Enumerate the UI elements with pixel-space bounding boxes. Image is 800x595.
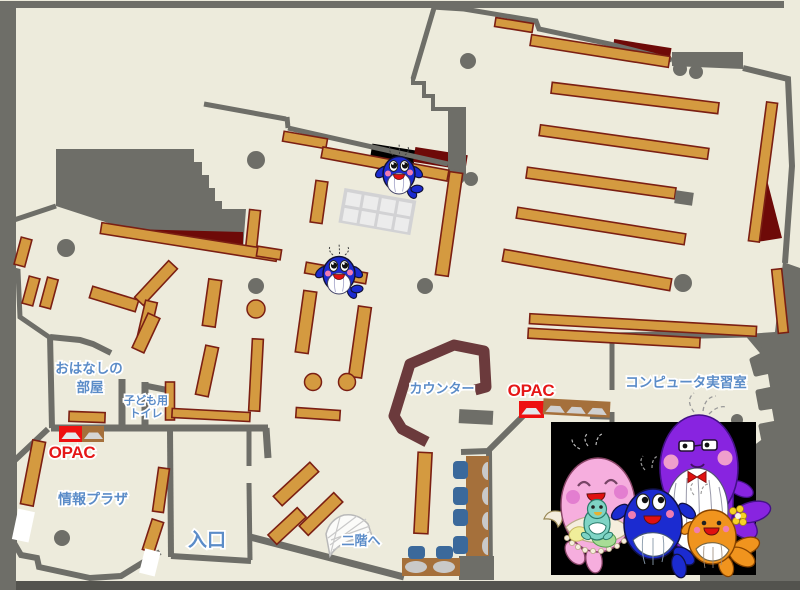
svg-text:情報プラザ: 情報プラザ <box>58 491 128 507</box>
svg-text:カウンター: カウンター <box>409 381 474 396</box>
svg-text:コンピュータ実習室: コンピュータ実習室 <box>625 374 747 390</box>
svg-text:子ども用: 子ども用 <box>124 394 168 407</box>
svg-text:トイレ: トイレ <box>130 407 163 420</box>
svg-text:OPAC: OPAC <box>508 381 555 400</box>
svg-text:二階へ: 二階へ <box>341 533 380 548</box>
svg-text:部屋: 部屋 <box>77 379 104 395</box>
svg-text:おはなしの: おはなしの <box>55 361 123 376</box>
svg-text:OPAC: OPAC <box>49 443 96 462</box>
svg-text:入口: 入口 <box>188 529 226 551</box>
